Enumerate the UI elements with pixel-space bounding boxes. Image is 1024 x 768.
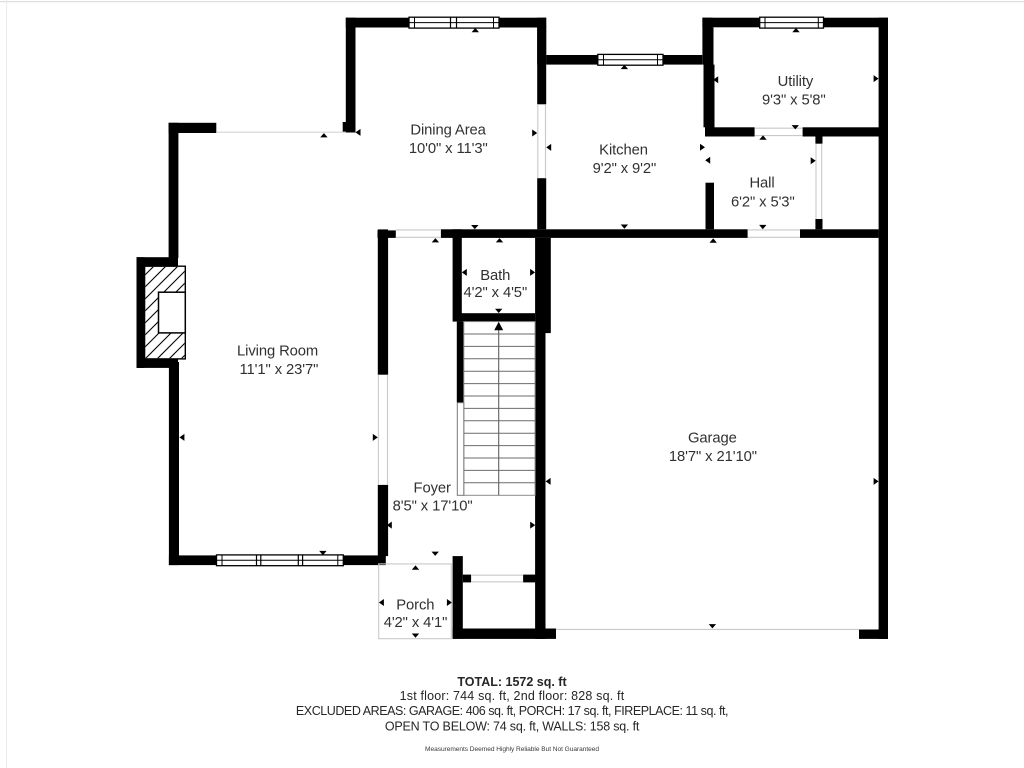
svg-text:Dining Area: Dining Area xyxy=(410,123,486,139)
svg-text:6'2" x 5'3": 6'2" x 5'3" xyxy=(731,194,795,210)
svg-text:18'7" x 21'10": 18'7" x 21'10" xyxy=(669,449,757,465)
svg-text:OPEN TO BELOW: 74 sq. ft, WALL: OPEN TO BELOW: 74 sq. ft, WALLS: 158 sq.… xyxy=(385,720,640,734)
svg-text:Measurements Deemed Highly Rel: Measurements Deemed Highly Reliable But … xyxy=(425,746,599,753)
svg-text:Utility: Utility xyxy=(778,74,814,90)
svg-text:1st floor: 744 sq. ft, 2nd flo: 1st floor: 744 sq. ft, 2nd floor: 828 sq… xyxy=(400,689,625,703)
svg-text:4'2" x 4'1": 4'2" x 4'1" xyxy=(384,615,448,631)
svg-text:Garage: Garage xyxy=(688,431,737,447)
svg-text:9'2" x 9'2": 9'2" x 9'2" xyxy=(593,161,657,177)
svg-text:Porch: Porch xyxy=(396,597,434,613)
svg-text:8'5" x 17'10": 8'5" x 17'10" xyxy=(393,498,473,514)
svg-text:TOTAL: 1572 sq. ft: TOTAL: 1572 sq. ft xyxy=(457,675,567,689)
svg-text:Living Room: Living Room xyxy=(237,343,318,359)
svg-text:4'2" x 4'5": 4'2" x 4'5" xyxy=(464,285,528,301)
svg-text:EXCLUDED AREAS: GARAGE: 406 sq: EXCLUDED AREAS: GARAGE: 406 sq. ft, PORC… xyxy=(296,704,728,718)
svg-text:10'0" x 11'3": 10'0" x 11'3" xyxy=(409,141,488,157)
svg-text:Foyer: Foyer xyxy=(414,481,451,497)
svg-text:9'3" x 5'8": 9'3" x 5'8" xyxy=(762,92,826,108)
svg-text:11'1" x 23'7": 11'1" x 23'7" xyxy=(240,362,319,378)
svg-text:Kitchen: Kitchen xyxy=(599,143,648,159)
svg-text:Bath: Bath xyxy=(480,268,510,284)
svg-text:Hall: Hall xyxy=(749,176,774,192)
